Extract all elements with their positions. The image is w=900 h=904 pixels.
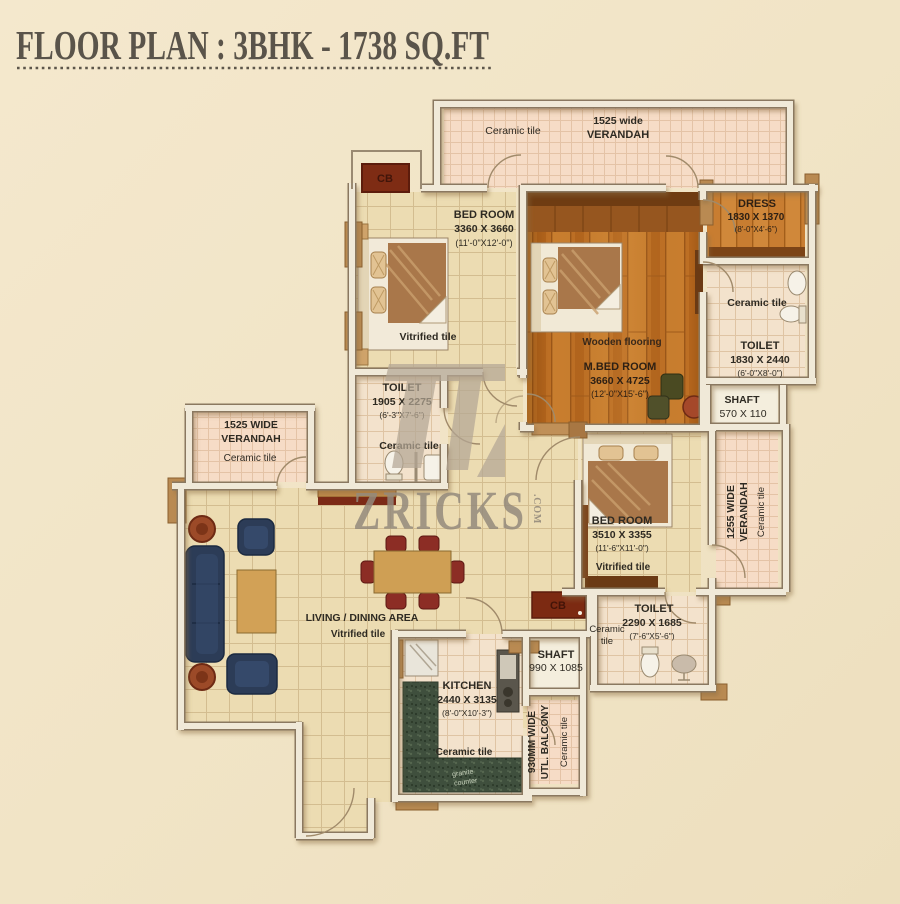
svg-text:BED ROOM: BED ROOM (454, 209, 515, 221)
svg-text:VERANDAH: VERANDAH (587, 129, 649, 141)
svg-text:SHAFT: SHAFT (725, 394, 761, 406)
svg-text:3660 X 4725: 3660 X 4725 (590, 375, 650, 387)
svg-text:FLOOR PLAN : 3BHK - 1738 SQ.FT: FLOOR PLAN : 3BHK - 1738 SQ.FT (16, 22, 489, 68)
svg-text:SHAFT: SHAFT (538, 649, 575, 661)
svg-text:(12'-0"X15'-6"): (12'-0"X15'-6") (591, 389, 649, 399)
svg-text:Ceramic tile: Ceramic tile (436, 747, 493, 758)
svg-text:M.BED ROOM: M.BED ROOM (584, 361, 657, 373)
svg-text:Vitrified tile: Vitrified tile (331, 629, 386, 640)
svg-text:Ceramic tile: Ceramic tile (224, 453, 277, 464)
svg-text:(7'-6"X5'-6"): (7'-6"X5'-6") (629, 631, 674, 641)
svg-text:(11'-0"X12'-0"): (11'-0"X12'-0") (455, 238, 512, 248)
svg-text:Wooden flooring: Wooden flooring (582, 337, 661, 348)
svg-text:VERANDAH: VERANDAH (221, 433, 281, 445)
svg-text:1830 X 1370: 1830 X 1370 (728, 212, 785, 223)
svg-text:1525 wide: 1525 wide (593, 115, 643, 127)
svg-text:CB: CB (550, 600, 566, 612)
svg-text:1830 X 2440: 1830 X 2440 (730, 354, 790, 366)
svg-text:ZRICKS: ZRICKS (353, 481, 527, 541)
svg-text:LIVING / DINING AREA: LIVING / DINING AREA (306, 612, 419, 624)
svg-text:Ceramic tile: Ceramic tile (727, 297, 787, 309)
svg-text:Ceramic tile: Ceramic tile (756, 487, 767, 537)
svg-text:Ceramic tile: Ceramic tile (559, 717, 570, 767)
svg-text:Vitrified tile: Vitrified tile (596, 562, 651, 573)
svg-text:990 X 1085: 990 X 1085 (529, 662, 583, 674)
svg-text:TOILET: TOILET (741, 340, 780, 352)
svg-text:2290 X 1685: 2290 X 1685 (622, 617, 682, 629)
svg-text:3510 X 3355: 3510 X 3355 (592, 529, 652, 541)
svg-text:tile: tile (601, 636, 613, 647)
svg-text:(6'-0"X8'-0"): (6'-0"X8'-0") (737, 368, 782, 378)
svg-text:Vitrified tile: Vitrified tile (400, 331, 457, 343)
svg-text:TOILET: TOILET (635, 603, 674, 615)
svg-text:Ceramic: Ceramic (589, 624, 625, 635)
svg-text:BED ROOM: BED ROOM (592, 515, 653, 527)
svg-text:(8'-0"X10'-3"): (8'-0"X10'-3") (442, 708, 492, 718)
svg-text:1525 WIDE: 1525 WIDE (224, 419, 278, 431)
svg-text:570 X 110: 570 X 110 (719, 408, 766, 420)
svg-text:KITCHEN: KITCHEN (443, 680, 492, 692)
svg-text:(11'-6"X11'-0"): (11'-6"X11'-0") (595, 543, 649, 553)
svg-text:CB: CB (377, 173, 393, 185)
svg-text:DRESS: DRESS (738, 198, 776, 210)
svg-text:(8'-0"X4'-6"): (8'-0"X4'-6") (735, 225, 778, 234)
svg-text:.COM: .COM (531, 494, 542, 524)
svg-text:1255 WIDEVERANDAH: 1255 WIDEVERANDAH (725, 482, 750, 542)
svg-text:2440 X 3135: 2440 X 3135 (437, 694, 497, 706)
svg-text:Ceramic tile: Ceramic tile (485, 125, 541, 137)
svg-text:3360 X 3660: 3360 X 3660 (454, 223, 514, 235)
